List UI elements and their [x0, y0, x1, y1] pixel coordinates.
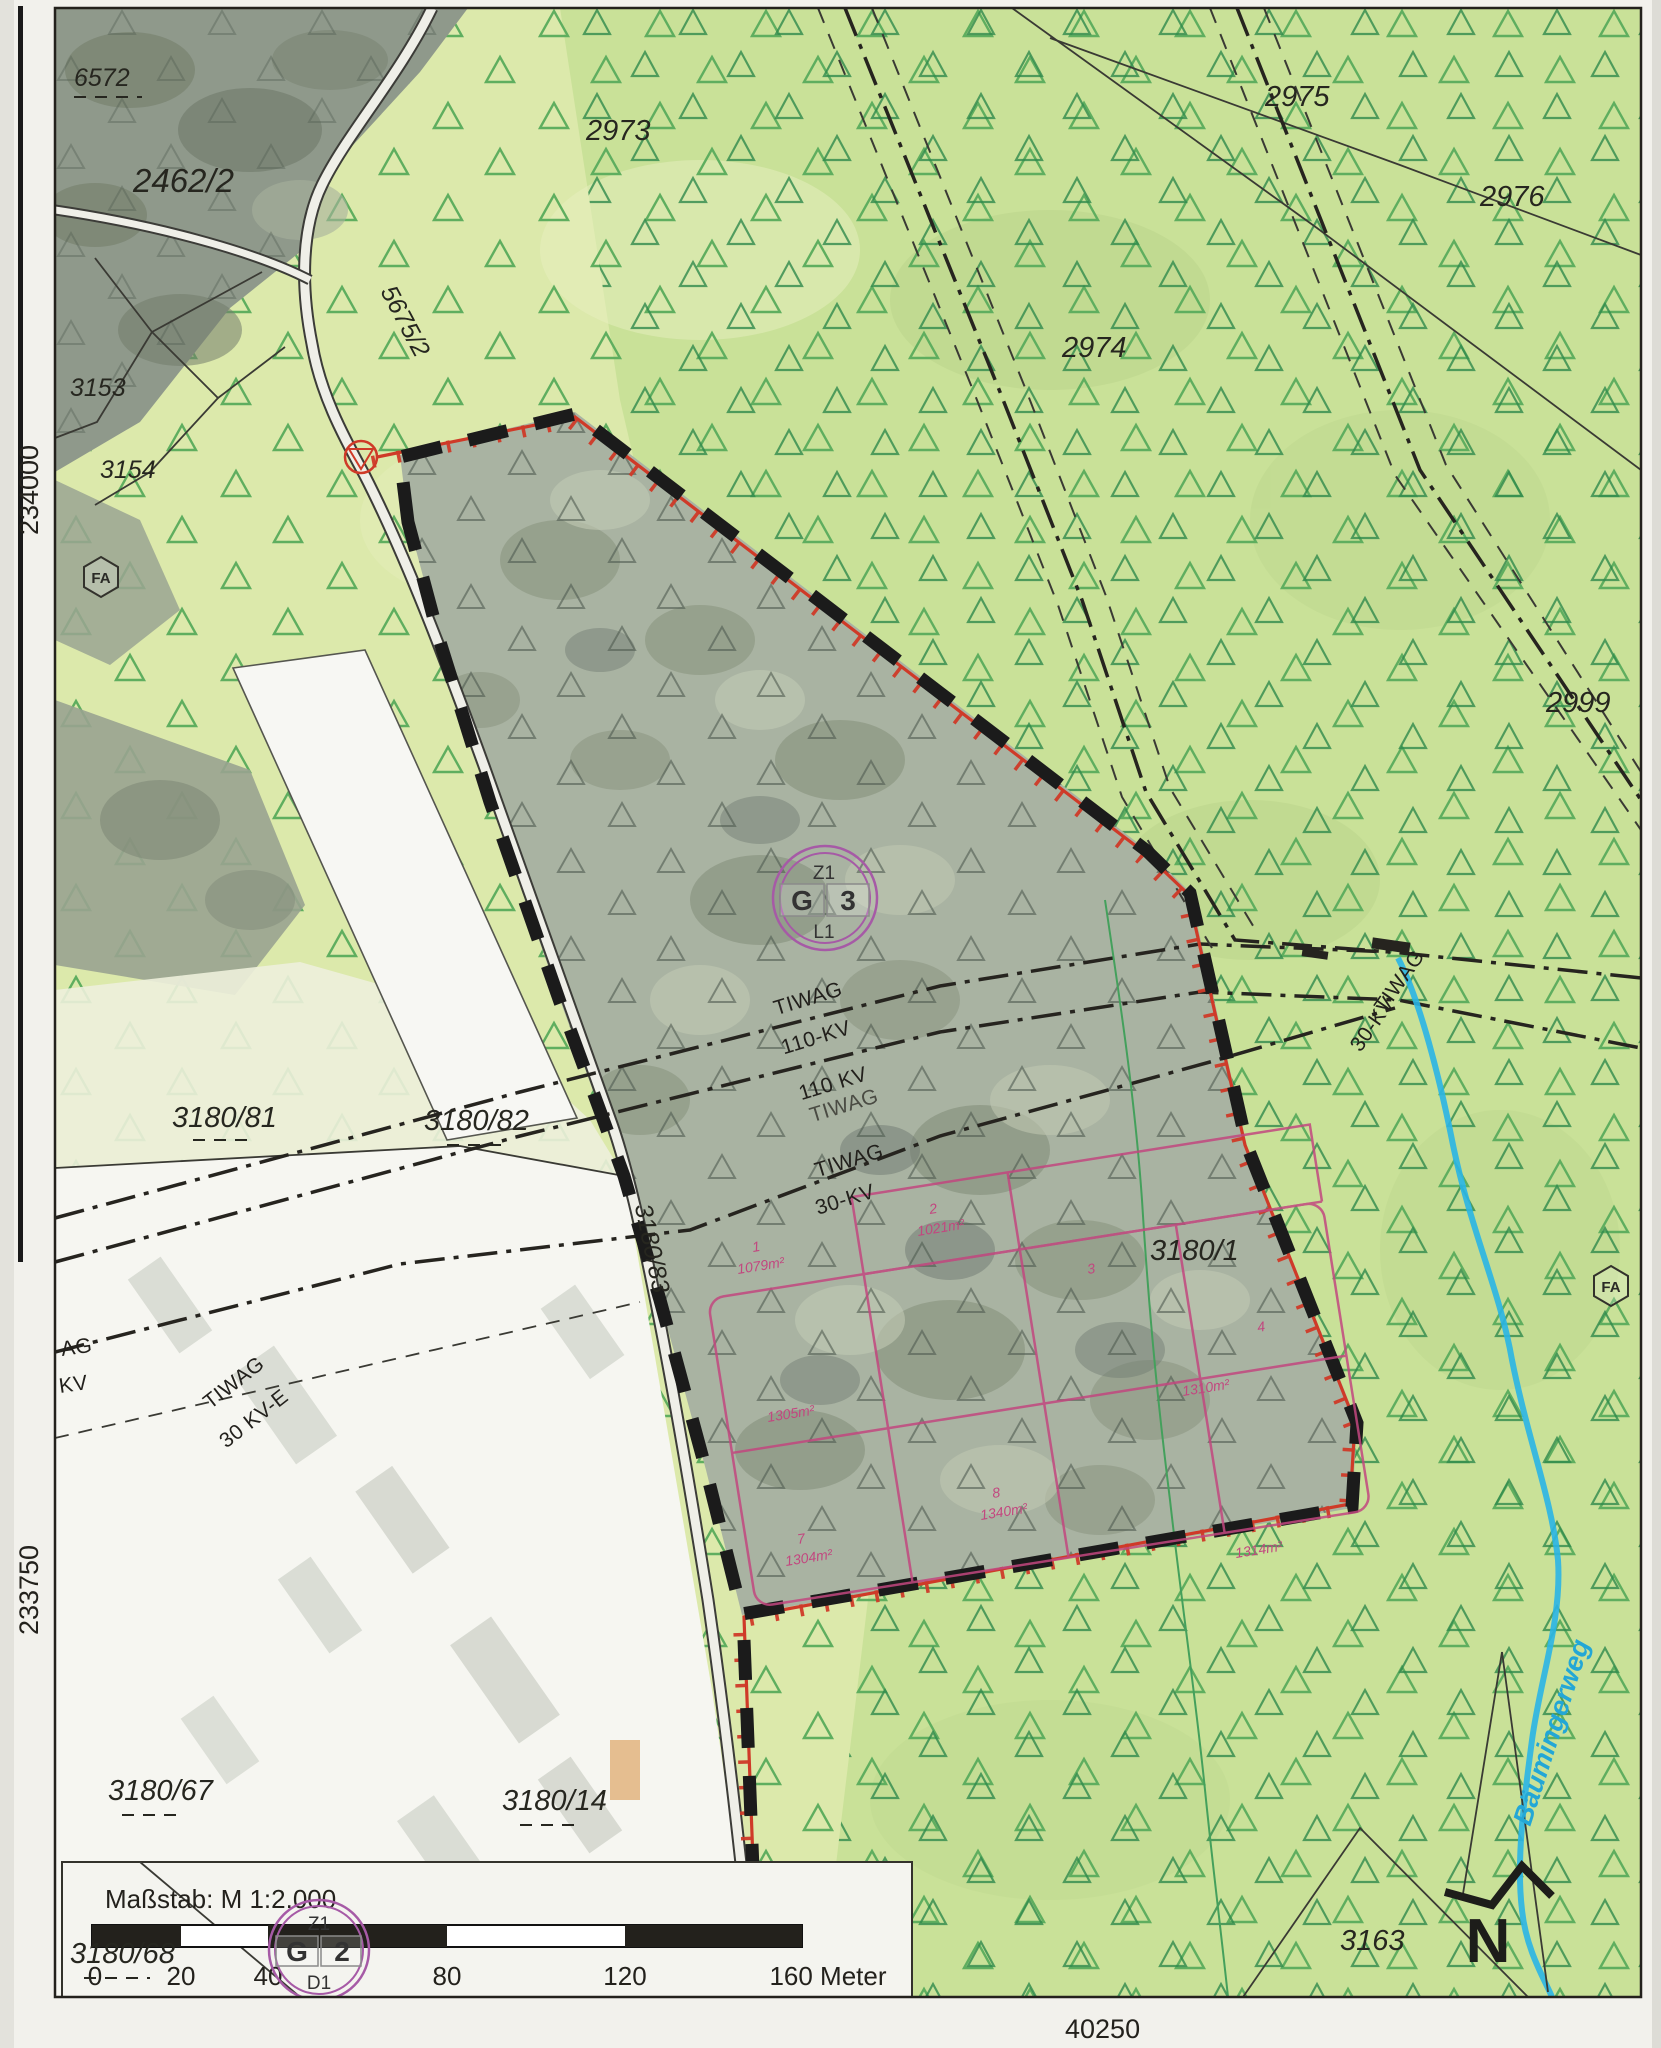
parcel-label: 3180/1: [1150, 1235, 1239, 1267]
parcel-label: 3154: [100, 456, 156, 484]
grid-coordinate-left: 234000: [14, 445, 44, 535]
cadastral-map: Maßstab: M 1:2.000 0 20 40 80 120 160 Me…: [0, 0, 1661, 2048]
parcel-label: 6572: [74, 64, 130, 92]
scale-bar: [92, 1925, 802, 1947]
sub-code: D1: [307, 1973, 331, 1994]
parcel-label: 3180/81: [172, 1102, 277, 1134]
scale-tick: 160 Meter: [769, 1961, 886, 1991]
sub-code: L1: [813, 922, 834, 943]
category-number: 3: [840, 885, 856, 916]
parcel-label: 3180/67: [108, 1775, 215, 1807]
parcel-label: 3163: [1340, 1925, 1405, 1957]
scan-artifact-line: [18, 6, 23, 1262]
zone-code: Z1: [813, 863, 835, 884]
parcel-label: 3153: [70, 374, 126, 402]
parcel-label: 2999: [1545, 687, 1611, 719]
parcel-label: 3180/82: [424, 1105, 529, 1137]
category-code: G: [286, 1936, 308, 1967]
parcel-label: 2975: [1264, 81, 1330, 113]
grid-coordinate-bottom: 40250: [1065, 2014, 1140, 2044]
parcel-label: 3180/68: [70, 1938, 175, 1970]
category-number: 2: [334, 1936, 350, 1967]
scale-legend: Maßstab: M 1:2.000 0 20 40 80 120 160 Me…: [62, 1862, 912, 1997]
fa-symbol: FA: [1594, 1266, 1628, 1306]
fa-label: FA: [91, 570, 110, 587]
parcel-label: 2976: [1479, 181, 1545, 213]
category-code: G: [791, 885, 813, 916]
scale-tick: 80: [433, 1961, 462, 1991]
parcel-label: 3180/14: [502, 1785, 607, 1817]
fa-label: FA: [1601, 1279, 1620, 1296]
scan-edge-right: [1652, 0, 1661, 2048]
scanned-map-page: Maßstab: M 1:2.000 0 20 40 80 120 160 Me…: [0, 0, 1661, 2048]
north-letter: N: [1466, 1907, 1511, 1976]
zone-code: Z1: [308, 1914, 330, 1935]
map-content: Maßstab: M 1:2.000 0 20 40 80 120 160 Me…: [43, 8, 1641, 2002]
fa-symbol: FA: [84, 557, 118, 597]
scale-tick: 120: [603, 1961, 646, 1991]
powerline-label: KV: [57, 1371, 89, 1398]
powerline-label: AG: [59, 1334, 93, 1361]
parcel-label: 2974: [1061, 332, 1127, 364]
scan-edge-strip: [0, 0, 14, 2048]
grid-coordinate-left: 233750: [14, 1545, 44, 1635]
parcel-label: 2462/2: [132, 162, 234, 199]
parcel-label: 2973: [585, 115, 651, 147]
